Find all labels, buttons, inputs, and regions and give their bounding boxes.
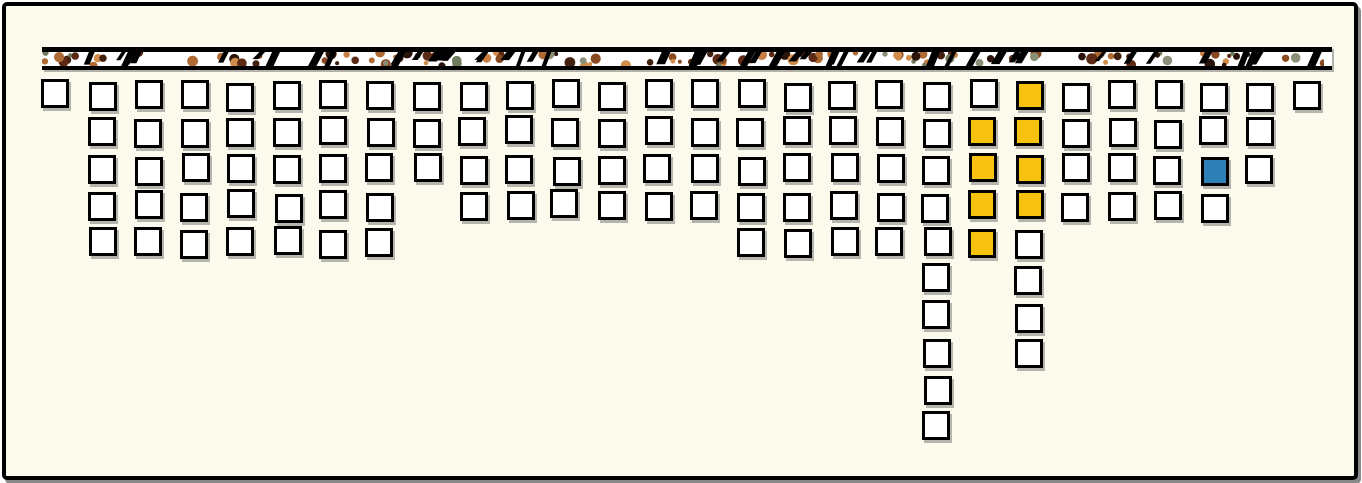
grid-square [551,118,579,147]
grid-square [922,156,950,185]
grid-square [1154,120,1182,149]
grid-square-highlighted [969,153,997,182]
grid-square [922,300,950,329]
grid-square-highlighted [1016,81,1044,110]
grid-square [691,154,719,183]
grid-square [413,119,441,148]
grid-square [643,154,671,183]
grid-square [89,227,117,256]
grid-square [1153,156,1181,185]
grid-square [598,156,626,185]
grid-square [553,157,581,186]
grid-square [877,193,905,222]
grid-square [1293,81,1321,110]
grid-square [1015,339,1043,368]
grid-square [273,81,301,110]
grid-square-highlighted [968,190,996,219]
grid-square-highlighted [968,229,996,258]
grid-square [922,263,950,292]
grid-square [876,117,904,146]
grid-square [366,81,394,110]
chart-frame [2,2,1358,480]
grid-square [598,82,626,111]
grid-square [414,153,442,182]
grid-square [831,153,859,182]
grid-square [1154,191,1182,220]
grid-square [365,228,393,257]
grid-square [365,153,393,182]
grid-square [831,227,859,256]
grid-square [1062,119,1090,148]
grid-square [924,376,952,405]
grid-square [1245,155,1273,184]
grid-square [970,79,998,108]
grid-square [1062,83,1090,112]
grid-square [182,153,210,182]
grid-square [921,194,949,223]
grid-square [598,119,626,148]
grid-square [180,230,208,259]
grid-square [829,116,857,145]
grid-square [784,83,812,112]
grid-square-highlighted [1016,190,1044,219]
grid-square [691,118,719,147]
grid-square [319,190,347,219]
grid-square [505,155,533,184]
grid-square-highlighted [1016,155,1044,184]
grid-square [923,339,951,368]
grid-square [645,192,673,221]
grid-square [1246,83,1274,112]
grid-square [506,81,534,110]
grid-square [738,157,766,186]
grid-square [830,191,858,220]
grid-square [645,79,673,108]
grid-square [598,191,626,220]
grid-square [1014,266,1042,295]
grid-square [738,79,766,108]
confetti-band-art [42,52,1324,66]
grid-square [88,192,116,221]
grid-square [877,154,905,183]
grid-square [1201,194,1229,223]
grid-square [875,227,903,256]
grid-square [923,82,951,111]
waffle-chart-figure [0,0,1362,483]
grid-square [737,228,765,257]
grid-square [367,118,395,147]
grid-square [690,191,718,220]
grid-square [736,118,764,147]
grid-square [88,117,116,146]
grid-square [505,115,533,144]
grid-square [366,193,394,222]
grid-square [226,118,254,147]
grid-square [227,154,255,183]
grid-square [1015,304,1043,333]
grid-square [645,116,673,145]
grid-square [181,80,209,109]
grid-square [275,194,303,223]
grid-square [1109,118,1137,147]
grid-square [319,80,347,109]
grid-square [1062,153,1090,182]
grid-square [319,230,347,259]
grid-square [413,82,441,111]
grid-square [922,411,950,440]
grid-square [227,189,255,218]
grid-square [924,227,952,256]
grid-square [550,189,578,218]
grid-square [460,156,488,185]
grid-square [41,79,69,108]
grid-square [1246,117,1274,146]
grid-square [783,193,811,222]
grid-square-highlighted [1014,117,1042,146]
grid-square [784,229,812,258]
grid-square-highlighted [1201,157,1229,186]
grid-square [319,154,347,183]
grid-square [135,80,163,109]
grid-square [134,119,162,148]
confetti-band [42,47,1332,70]
grid-square [226,83,254,112]
grid-square [1015,230,1043,259]
grid-square [1108,80,1136,109]
grid-square [273,118,301,147]
grid-square [180,193,208,222]
grid-square [319,116,347,145]
grid-square [274,226,302,255]
grid-square [1108,192,1136,221]
grid-square [1061,193,1089,222]
grid-square [460,192,488,221]
grid-square [135,190,163,219]
grid-square [134,227,162,256]
grid-square [737,193,765,222]
grid-square [135,157,163,186]
grid-square [923,119,951,148]
grid-square [273,155,301,184]
grid-square [181,119,209,148]
grid-square [88,155,116,184]
grid-square [226,227,254,256]
grid-square [460,82,488,111]
grid-square [552,79,580,108]
grid-square [1199,116,1227,145]
grid-square [1155,80,1183,109]
grid-square [1200,83,1228,112]
grid-square [875,80,903,109]
grid-square [1108,153,1136,182]
grid-square [89,82,117,111]
grid-square [828,81,856,110]
grid-square [783,116,811,145]
grid-square-highlighted [968,117,996,146]
grid-square [507,191,535,220]
grid-square [691,79,719,108]
grid-square [783,153,811,182]
grid-square [458,117,486,146]
